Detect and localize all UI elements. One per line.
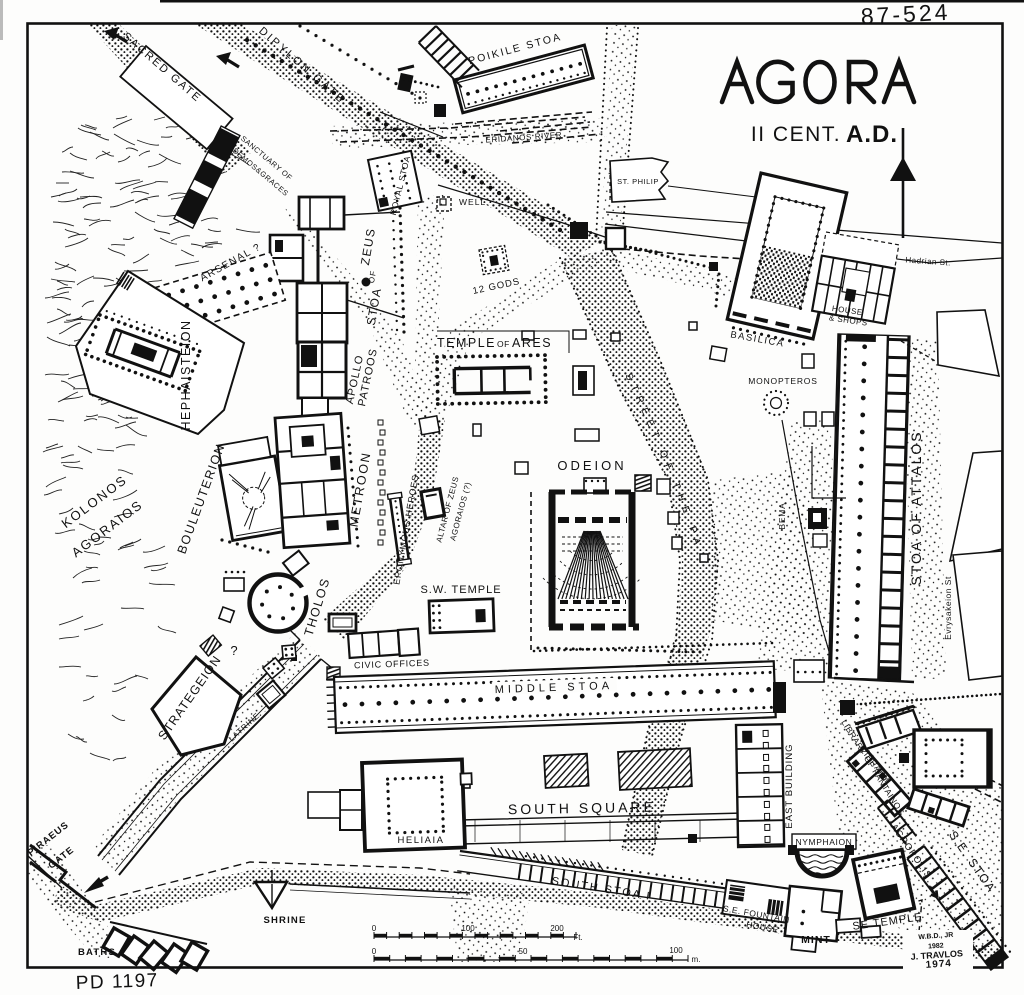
svg-text:SOUTH SQUARE: SOUTH SQUARE — [508, 799, 656, 818]
svg-text:ODEION: ODEION — [557, 458, 626, 473]
svg-text:OF: OF — [497, 339, 510, 349]
svg-text:1974: 1974 — [925, 958, 952, 971]
svg-text:WELL: WELL — [459, 197, 486, 207]
svg-text:ST. PHILIP: ST. PHILIP — [617, 177, 659, 186]
svg-text:0: 0 — [372, 947, 377, 956]
svg-text:A.D.: A.D. — [846, 121, 898, 148]
svg-text:?: ? — [230, 643, 237, 658]
svg-text:PD 1197: PD 1197 — [75, 970, 159, 994]
svg-text:STOA OF ATTALOS: STOA OF ATTALOS — [908, 430, 924, 585]
svg-text:BEMA: BEMA — [777, 502, 787, 529]
svg-text:0: 0 — [372, 924, 377, 933]
svg-text:MONOPTEROS: MONOPTEROS — [748, 376, 817, 386]
svg-text:100: 100 — [461, 924, 475, 933]
svg-text:EAST BUILDING: EAST BUILDING — [784, 743, 795, 828]
svg-text:Evrysakeion St: Evrysakeion St — [943, 576, 953, 640]
svg-text:HEPHAISTEION: HEPHAISTEION — [179, 319, 193, 430]
svg-text:MINT: MINT — [801, 934, 831, 946]
svg-text:HELIAIA: HELIAIA — [398, 835, 445, 846]
svg-text:200: 200 — [550, 924, 564, 933]
svg-text:ARES: ARES — [512, 336, 552, 350]
svg-text:TEMPLE: TEMPLE — [437, 336, 496, 350]
svg-text:87-524: 87-524 — [860, 0, 951, 29]
svg-text:NYMPHAION: NYMPHAION — [796, 837, 853, 847]
svg-text:50: 50 — [519, 947, 528, 956]
svg-text:100: 100 — [669, 946, 683, 955]
svg-text:SHRINE: SHRINE — [263, 915, 306, 926]
svg-text:BATHS: BATHS — [78, 947, 116, 958]
svg-text:Ft.: Ft. — [573, 933, 582, 942]
svg-text:II CENT.: II CENT. — [751, 123, 841, 146]
svg-text:m.: m. — [692, 955, 701, 964]
svg-text:S.W. TEMPLE: S.W. TEMPLE — [420, 584, 501, 596]
